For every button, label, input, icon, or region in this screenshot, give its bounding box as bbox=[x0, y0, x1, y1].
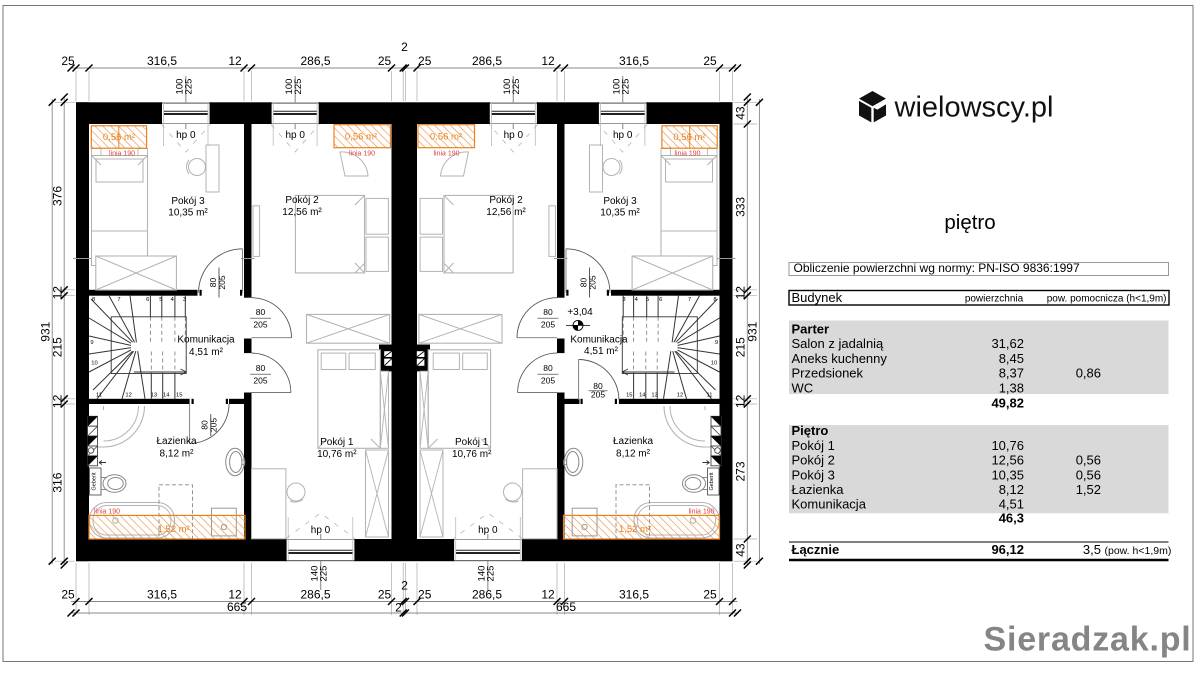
svg-text:0,56: 0,56 bbox=[1076, 453, 1101, 468]
svg-text:4,51 m²: 4,51 m² bbox=[189, 347, 224, 358]
svg-text:Geberit: Geberit bbox=[92, 472, 98, 491]
svg-text:Łazienka: Łazienka bbox=[792, 482, 845, 497]
svg-text:5: 5 bbox=[159, 297, 162, 303]
svg-text:4,51: 4,51 bbox=[999, 497, 1024, 512]
svg-text:WC: WC bbox=[792, 381, 814, 396]
svg-text:215: 215 bbox=[51, 337, 65, 357]
svg-text:25: 25 bbox=[418, 54, 432, 68]
svg-text:8: 8 bbox=[92, 297, 95, 303]
svg-text:316,5: 316,5 bbox=[147, 54, 177, 68]
svg-text:15: 15 bbox=[176, 393, 182, 399]
svg-text:80: 80 bbox=[256, 307, 266, 317]
svg-text:12: 12 bbox=[51, 394, 65, 408]
svg-text:8,12: 8,12 bbox=[999, 482, 1024, 497]
svg-text:25: 25 bbox=[378, 54, 392, 68]
svg-text:hp 0: hp 0 bbox=[311, 525, 331, 536]
svg-text:12: 12 bbox=[51, 286, 65, 300]
svg-text:665: 665 bbox=[556, 600, 576, 614]
svg-text:14: 14 bbox=[163, 393, 170, 399]
svg-text:1,52: 1,52 bbox=[1076, 482, 1101, 497]
svg-text:+3,04: +3,04 bbox=[567, 307, 593, 318]
svg-text:205: 205 bbox=[541, 319, 555, 329]
svg-text:Pokój 3: Pokój 3 bbox=[792, 467, 835, 482]
svg-text:11: 11 bbox=[706, 393, 712, 399]
svg-text:12: 12 bbox=[734, 394, 748, 408]
svg-text:286,5: 286,5 bbox=[472, 54, 502, 68]
svg-text:286,5: 286,5 bbox=[472, 588, 502, 602]
svg-text:linia 190: linia 190 bbox=[674, 151, 700, 158]
svg-text:1,52 m²: 1,52 m² bbox=[157, 524, 189, 535]
svg-text:6: 6 bbox=[146, 297, 149, 303]
svg-text:Aneks kuchenny: Aneks kuchenny bbox=[792, 351, 888, 366]
svg-text:225: 225 bbox=[293, 79, 304, 95]
svg-text:6: 6 bbox=[659, 297, 662, 303]
svg-text:Sieradzak.pl: Sieradzak.pl bbox=[984, 621, 1192, 659]
svg-text:10: 10 bbox=[711, 361, 717, 367]
svg-text:(pow. h<1,9m): (pow. h<1,9m) bbox=[1105, 545, 1172, 557]
svg-text:0,56: 0,56 bbox=[1076, 467, 1101, 482]
svg-text:piętro: piętro bbox=[944, 211, 995, 234]
svg-text:9: 9 bbox=[715, 340, 718, 346]
svg-text:25: 25 bbox=[61, 588, 75, 602]
svg-text:10: 10 bbox=[91, 361, 97, 367]
svg-text:8,45: 8,45 bbox=[999, 351, 1024, 366]
svg-text:316,5: 316,5 bbox=[619, 588, 649, 602]
svg-text:Pokój 3: Pokój 3 bbox=[171, 196, 205, 207]
svg-text:333: 333 bbox=[734, 197, 748, 217]
svg-text:25: 25 bbox=[703, 54, 717, 68]
svg-text:1,52 m²: 1,52 m² bbox=[619, 524, 651, 535]
svg-text:14: 14 bbox=[639, 393, 646, 399]
svg-text:316,5: 316,5 bbox=[619, 54, 649, 68]
svg-text:49,82: 49,82 bbox=[991, 395, 1024, 410]
svg-text:225: 225 bbox=[511, 79, 522, 95]
svg-text:Piętro: Piętro bbox=[792, 423, 829, 438]
svg-text:hp 0: hp 0 bbox=[478, 525, 498, 536]
svg-text:Łazienka: Łazienka bbox=[156, 436, 196, 447]
svg-text:7: 7 bbox=[688, 297, 691, 303]
svg-text:Parter: Parter bbox=[792, 321, 830, 336]
svg-text:286,5: 286,5 bbox=[300, 588, 330, 602]
svg-text:286,5: 286,5 bbox=[300, 54, 330, 68]
svg-text:wielowscy.pl: wielowscy.pl bbox=[894, 92, 1054, 124]
svg-text:46,3: 46,3 bbox=[999, 511, 1024, 526]
svg-text:0,56 m²: 0,56 m² bbox=[345, 132, 377, 143]
svg-text:powierzchnia: powierzchnia bbox=[965, 294, 1024, 305]
svg-text:225: 225 bbox=[486, 566, 497, 582]
svg-text:Pokój 1: Pokój 1 bbox=[455, 437, 489, 448]
svg-text:25: 25 bbox=[703, 588, 717, 602]
svg-text:316,5: 316,5 bbox=[147, 588, 177, 602]
svg-text:linia 190: linia 190 bbox=[349, 151, 375, 158]
svg-text:43: 43 bbox=[734, 106, 748, 120]
svg-text:10,35: 10,35 bbox=[991, 467, 1024, 482]
svg-text:0,56 m²: 0,56 m² bbox=[673, 132, 705, 143]
svg-text:Łazienka: Łazienka bbox=[613, 436, 653, 447]
svg-text:hp 0: hp 0 bbox=[176, 130, 196, 141]
svg-text:225: 225 bbox=[621, 79, 632, 95]
svg-text:25: 25 bbox=[61, 54, 75, 68]
svg-text:25: 25 bbox=[378, 588, 392, 602]
svg-text:9: 9 bbox=[90, 340, 93, 346]
svg-text:31,62: 31,62 bbox=[991, 336, 1024, 351]
svg-text:0,56 m²: 0,56 m² bbox=[430, 132, 462, 143]
svg-text:205: 205 bbox=[591, 390, 605, 400]
svg-text:12,56 m²: 12,56 m² bbox=[486, 207, 526, 218]
svg-text:376: 376 bbox=[51, 186, 65, 206]
svg-text:12: 12 bbox=[541, 54, 555, 68]
svg-text:80: 80 bbox=[543, 307, 553, 317]
svg-text:205: 205 bbox=[253, 319, 267, 329]
svg-text:Łącznie: Łącznie bbox=[792, 542, 840, 557]
svg-text:hp 0: hp 0 bbox=[613, 130, 633, 141]
svg-text:205: 205 bbox=[209, 418, 219, 432]
svg-text:931: 931 bbox=[746, 321, 760, 341]
svg-text:12,56 m²: 12,56 m² bbox=[282, 207, 322, 218]
svg-text:linia 190: linia 190 bbox=[94, 509, 120, 516]
svg-text:12: 12 bbox=[125, 393, 131, 399]
svg-text:12: 12 bbox=[541, 588, 555, 602]
svg-text:Salon z jadalnią: Salon z jadalnią bbox=[792, 336, 885, 351]
svg-text:15: 15 bbox=[626, 393, 632, 399]
svg-text:linia 190: linia 190 bbox=[433, 151, 459, 158]
svg-text:12: 12 bbox=[734, 286, 748, 300]
svg-text:12: 12 bbox=[228, 54, 242, 68]
svg-text:10,76 m²: 10,76 m² bbox=[452, 449, 492, 460]
svg-text:10,35 m²: 10,35 m² bbox=[168, 208, 208, 219]
svg-text:linia 190: linia 190 bbox=[688, 509, 714, 516]
svg-text:205: 205 bbox=[253, 375, 267, 385]
svg-text:316: 316 bbox=[51, 472, 65, 492]
svg-text:Budynek: Budynek bbox=[792, 290, 843, 305]
svg-text:Pokój 1: Pokój 1 bbox=[320, 437, 354, 448]
svg-text:205: 205 bbox=[588, 275, 598, 289]
svg-text:10,35 m²: 10,35 m² bbox=[600, 208, 640, 219]
svg-text:5: 5 bbox=[646, 297, 649, 303]
svg-text:43: 43 bbox=[734, 543, 748, 557]
svg-text:2: 2 bbox=[401, 40, 408, 54]
svg-text:hp 0: hp 0 bbox=[285, 130, 305, 141]
svg-text:10,76 m²: 10,76 m² bbox=[317, 449, 357, 460]
svg-text:0,56 m²: 0,56 m² bbox=[103, 132, 135, 143]
svg-text:7: 7 bbox=[117, 297, 120, 303]
svg-text:2: 2 bbox=[395, 601, 402, 615]
svg-text:3,5: 3,5 bbox=[1083, 542, 1101, 557]
svg-text:13: 13 bbox=[151, 393, 157, 399]
svg-text:Pokój 2: Pokój 2 bbox=[285, 195, 319, 206]
svg-text:Komunikacja: Komunikacja bbox=[792, 497, 867, 512]
svg-text:225: 225 bbox=[319, 566, 330, 582]
svg-text:12,56: 12,56 bbox=[991, 453, 1024, 468]
svg-text:96,12: 96,12 bbox=[991, 542, 1024, 557]
svg-text:273: 273 bbox=[734, 461, 748, 481]
svg-text:665: 665 bbox=[227, 600, 247, 614]
svg-text:0,86: 0,86 bbox=[1076, 366, 1101, 381]
svg-text:80: 80 bbox=[256, 363, 266, 373]
svg-text:4,51 m²: 4,51 m² bbox=[584, 346, 619, 357]
svg-text:Obliczenie powierzchni wg norm: Obliczenie powierzchni wg normy: PN-ISO … bbox=[794, 261, 1080, 275]
svg-text:8: 8 bbox=[713, 297, 716, 303]
svg-text:205: 205 bbox=[217, 275, 227, 289]
svg-text:225: 225 bbox=[184, 79, 195, 95]
svg-text:25: 25 bbox=[418, 588, 432, 602]
svg-text:Przedsionek: Przedsionek bbox=[792, 366, 864, 381]
svg-text:80: 80 bbox=[543, 363, 553, 373]
svg-text:hp 0: hp 0 bbox=[504, 130, 524, 141]
svg-text:12: 12 bbox=[677, 393, 683, 399]
svg-text:13: 13 bbox=[651, 393, 657, 399]
svg-text:Komunikacja: Komunikacja bbox=[570, 335, 628, 346]
svg-text:11: 11 bbox=[96, 393, 102, 399]
svg-text:2: 2 bbox=[401, 579, 408, 593]
svg-text:Pokój 2: Pokój 2 bbox=[792, 453, 835, 468]
svg-text:Pokój 1: Pokój 1 bbox=[792, 438, 835, 453]
svg-text:Komunikacja: Komunikacja bbox=[177, 335, 235, 346]
svg-text:Pokój 2: Pokój 2 bbox=[489, 195, 523, 206]
svg-text:1,38: 1,38 bbox=[999, 381, 1024, 396]
svg-text:8,12 m²: 8,12 m² bbox=[160, 449, 195, 460]
svg-text:linia 190: linia 190 bbox=[109, 151, 135, 158]
svg-text:Geberit: Geberit bbox=[709, 472, 715, 491]
svg-text:3: 3 bbox=[183, 297, 186, 303]
svg-text:3: 3 bbox=[622, 297, 625, 303]
svg-text:931: 931 bbox=[39, 321, 53, 341]
svg-text:8,37: 8,37 bbox=[999, 366, 1024, 381]
svg-text:10,76: 10,76 bbox=[991, 438, 1024, 453]
svg-text:pow. pomocnicza (h<1,9m): pow. pomocnicza (h<1,9m) bbox=[1047, 294, 1167, 305]
svg-text:205: 205 bbox=[541, 375, 555, 385]
svg-text:8,12 m²: 8,12 m² bbox=[616, 449, 651, 460]
svg-text:Pokój 3: Pokój 3 bbox=[603, 196, 637, 207]
